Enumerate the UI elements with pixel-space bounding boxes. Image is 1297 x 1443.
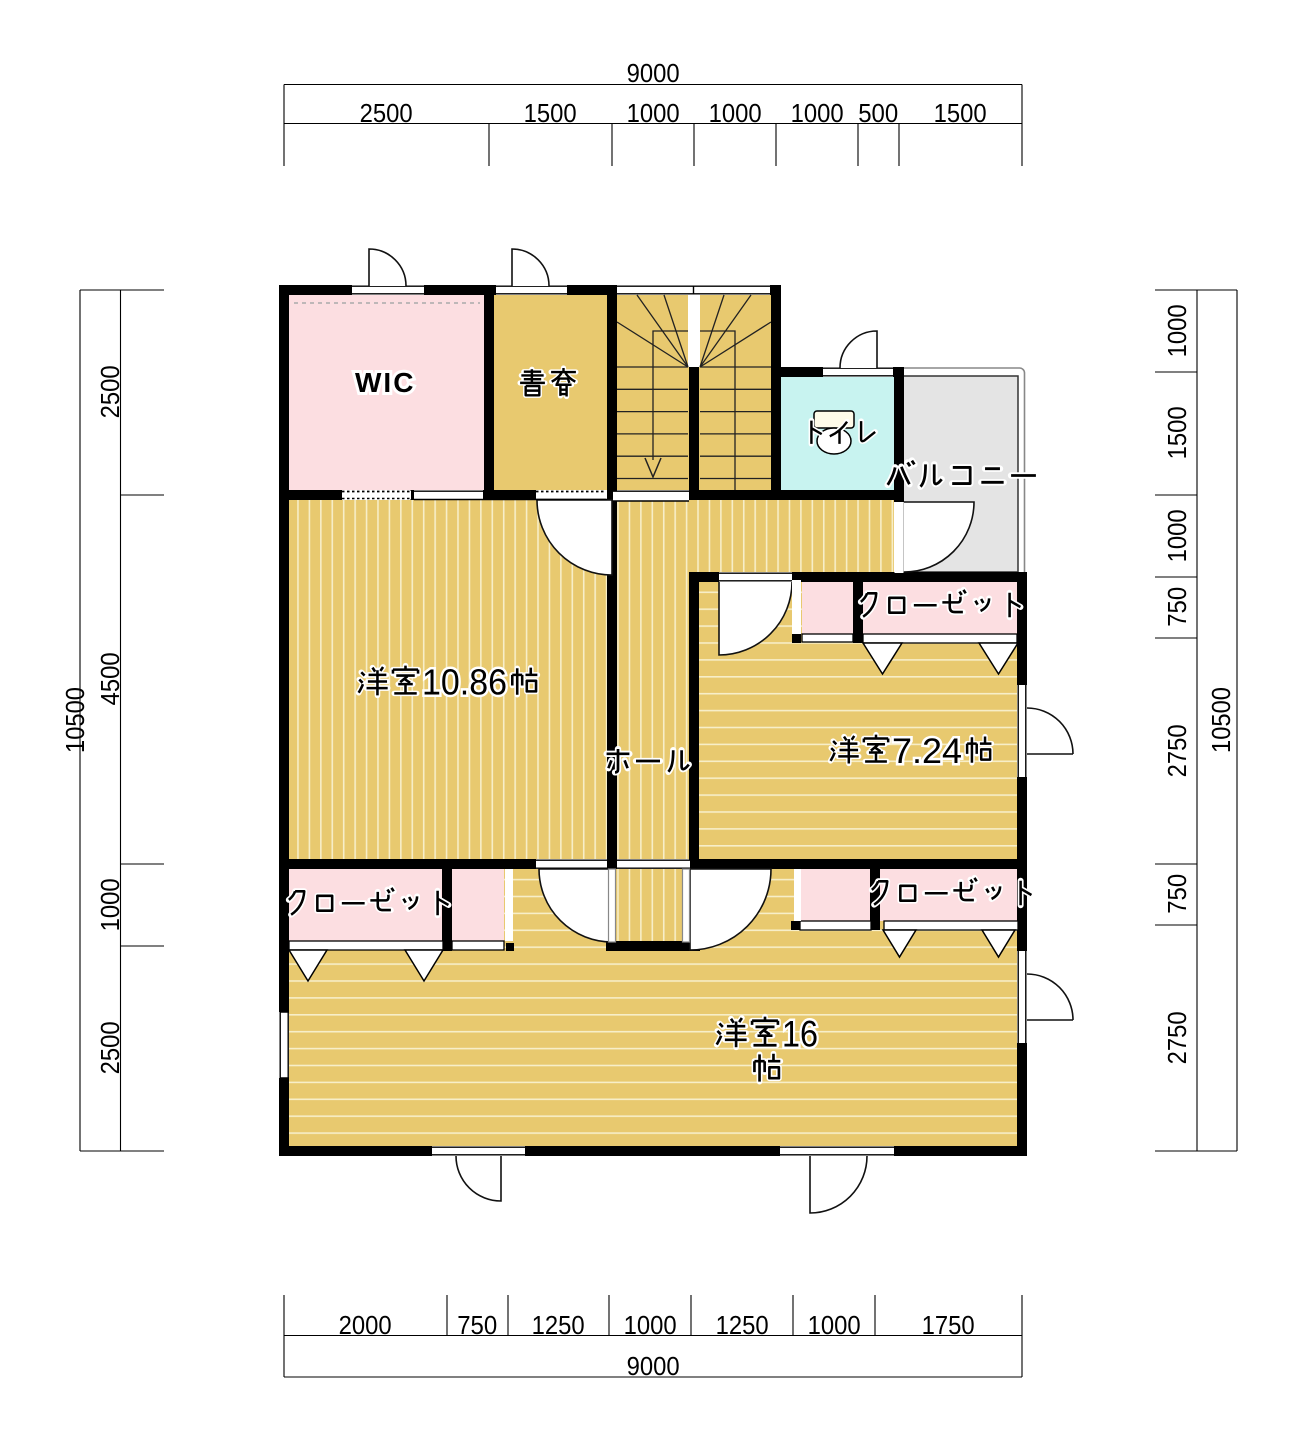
svg-text:1500: 1500 <box>934 98 987 128</box>
svg-text:1750: 1750 <box>922 1310 975 1340</box>
svg-text:16: 16 <box>782 1014 818 1055</box>
svg-text:1000: 1000 <box>1162 304 1192 357</box>
svg-text:1000: 1000 <box>95 878 125 931</box>
svg-text:2750: 2750 <box>1162 1011 1192 1064</box>
svg-text:9000: 9000 <box>627 58 680 88</box>
svg-text:1000: 1000 <box>624 1310 677 1340</box>
svg-text:1000: 1000 <box>791 98 844 128</box>
svg-text:1000: 1000 <box>1162 509 1192 562</box>
svg-text:1000: 1000 <box>709 98 762 128</box>
svg-text:10.86: 10.86 <box>422 662 507 703</box>
svg-text:2500: 2500 <box>95 1021 125 1074</box>
svg-text:1000: 1000 <box>808 1310 861 1340</box>
svg-text:750: 750 <box>1162 874 1192 914</box>
svg-text:750: 750 <box>457 1310 497 1340</box>
svg-text:1250: 1250 <box>716 1310 769 1340</box>
svg-text:10500: 10500 <box>1206 687 1236 753</box>
svg-text:2500: 2500 <box>360 98 413 128</box>
svg-text:WIC: WIC <box>355 367 415 398</box>
svg-text:2750: 2750 <box>1162 724 1192 777</box>
svg-text:1250: 1250 <box>532 1310 585 1340</box>
svg-text:750: 750 <box>1162 587 1192 627</box>
svg-text:2500: 2500 <box>95 365 125 418</box>
svg-text:4500: 4500 <box>95 652 125 705</box>
svg-text:1000: 1000 <box>627 98 680 128</box>
svg-text:10500: 10500 <box>60 687 90 753</box>
svg-text:1500: 1500 <box>1162 406 1192 459</box>
svg-text:1500: 1500 <box>524 98 577 128</box>
svg-text:2000: 2000 <box>339 1310 392 1340</box>
svg-text:9000: 9000 <box>627 1351 680 1381</box>
svg-text:7.24: 7.24 <box>892 732 962 771</box>
svg-text:500: 500 <box>858 98 898 128</box>
